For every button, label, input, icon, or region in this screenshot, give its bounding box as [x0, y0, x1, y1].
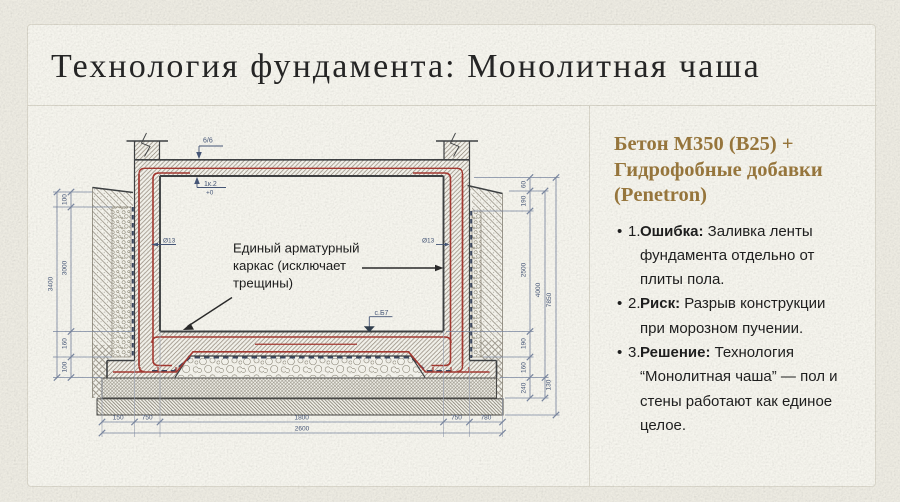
svg-text:1к.2: 1к.2	[204, 181, 217, 188]
svg-text:4000: 4000	[535, 282, 542, 297]
svg-text:1800: 1800	[294, 415, 309, 422]
svg-text:Ø13: Ø13	[422, 238, 435, 245]
svg-text:2600: 2600	[295, 426, 310, 433]
svg-text:+0: +0	[206, 190, 214, 197]
svg-text:60: 60	[521, 181, 528, 189]
svg-text:130: 130	[546, 379, 553, 390]
svg-text:каркас (исключает: каркас (исключает	[233, 258, 346, 273]
svg-text:2500: 2500	[521, 262, 528, 277]
svg-text:Ø13: Ø13	[163, 238, 176, 245]
svg-text:750: 750	[142, 415, 153, 422]
svg-text:3000: 3000	[62, 260, 69, 275]
svg-text:190: 190	[521, 338, 528, 349]
svg-text:6/6: 6/6	[203, 138, 213, 145]
svg-text:Единый арматурный: Единый арматурный	[233, 241, 360, 256]
svg-text:7850: 7850	[546, 292, 553, 307]
svg-text:240: 240	[521, 382, 528, 393]
svg-text:190: 190	[521, 195, 528, 206]
svg-text:160: 160	[62, 338, 69, 349]
svg-text:трещины): трещины)	[233, 276, 293, 291]
svg-text:100: 100	[62, 361, 69, 372]
svg-text:780: 780	[481, 415, 492, 422]
svg-text:150: 150	[113, 415, 124, 422]
svg-text:с.Б7: с.Б7	[375, 310, 389, 317]
svg-text:3400: 3400	[48, 276, 55, 291]
svg-text:160: 160	[521, 362, 528, 373]
svg-text:750: 750	[451, 415, 462, 422]
svg-text:100: 100	[62, 194, 69, 205]
